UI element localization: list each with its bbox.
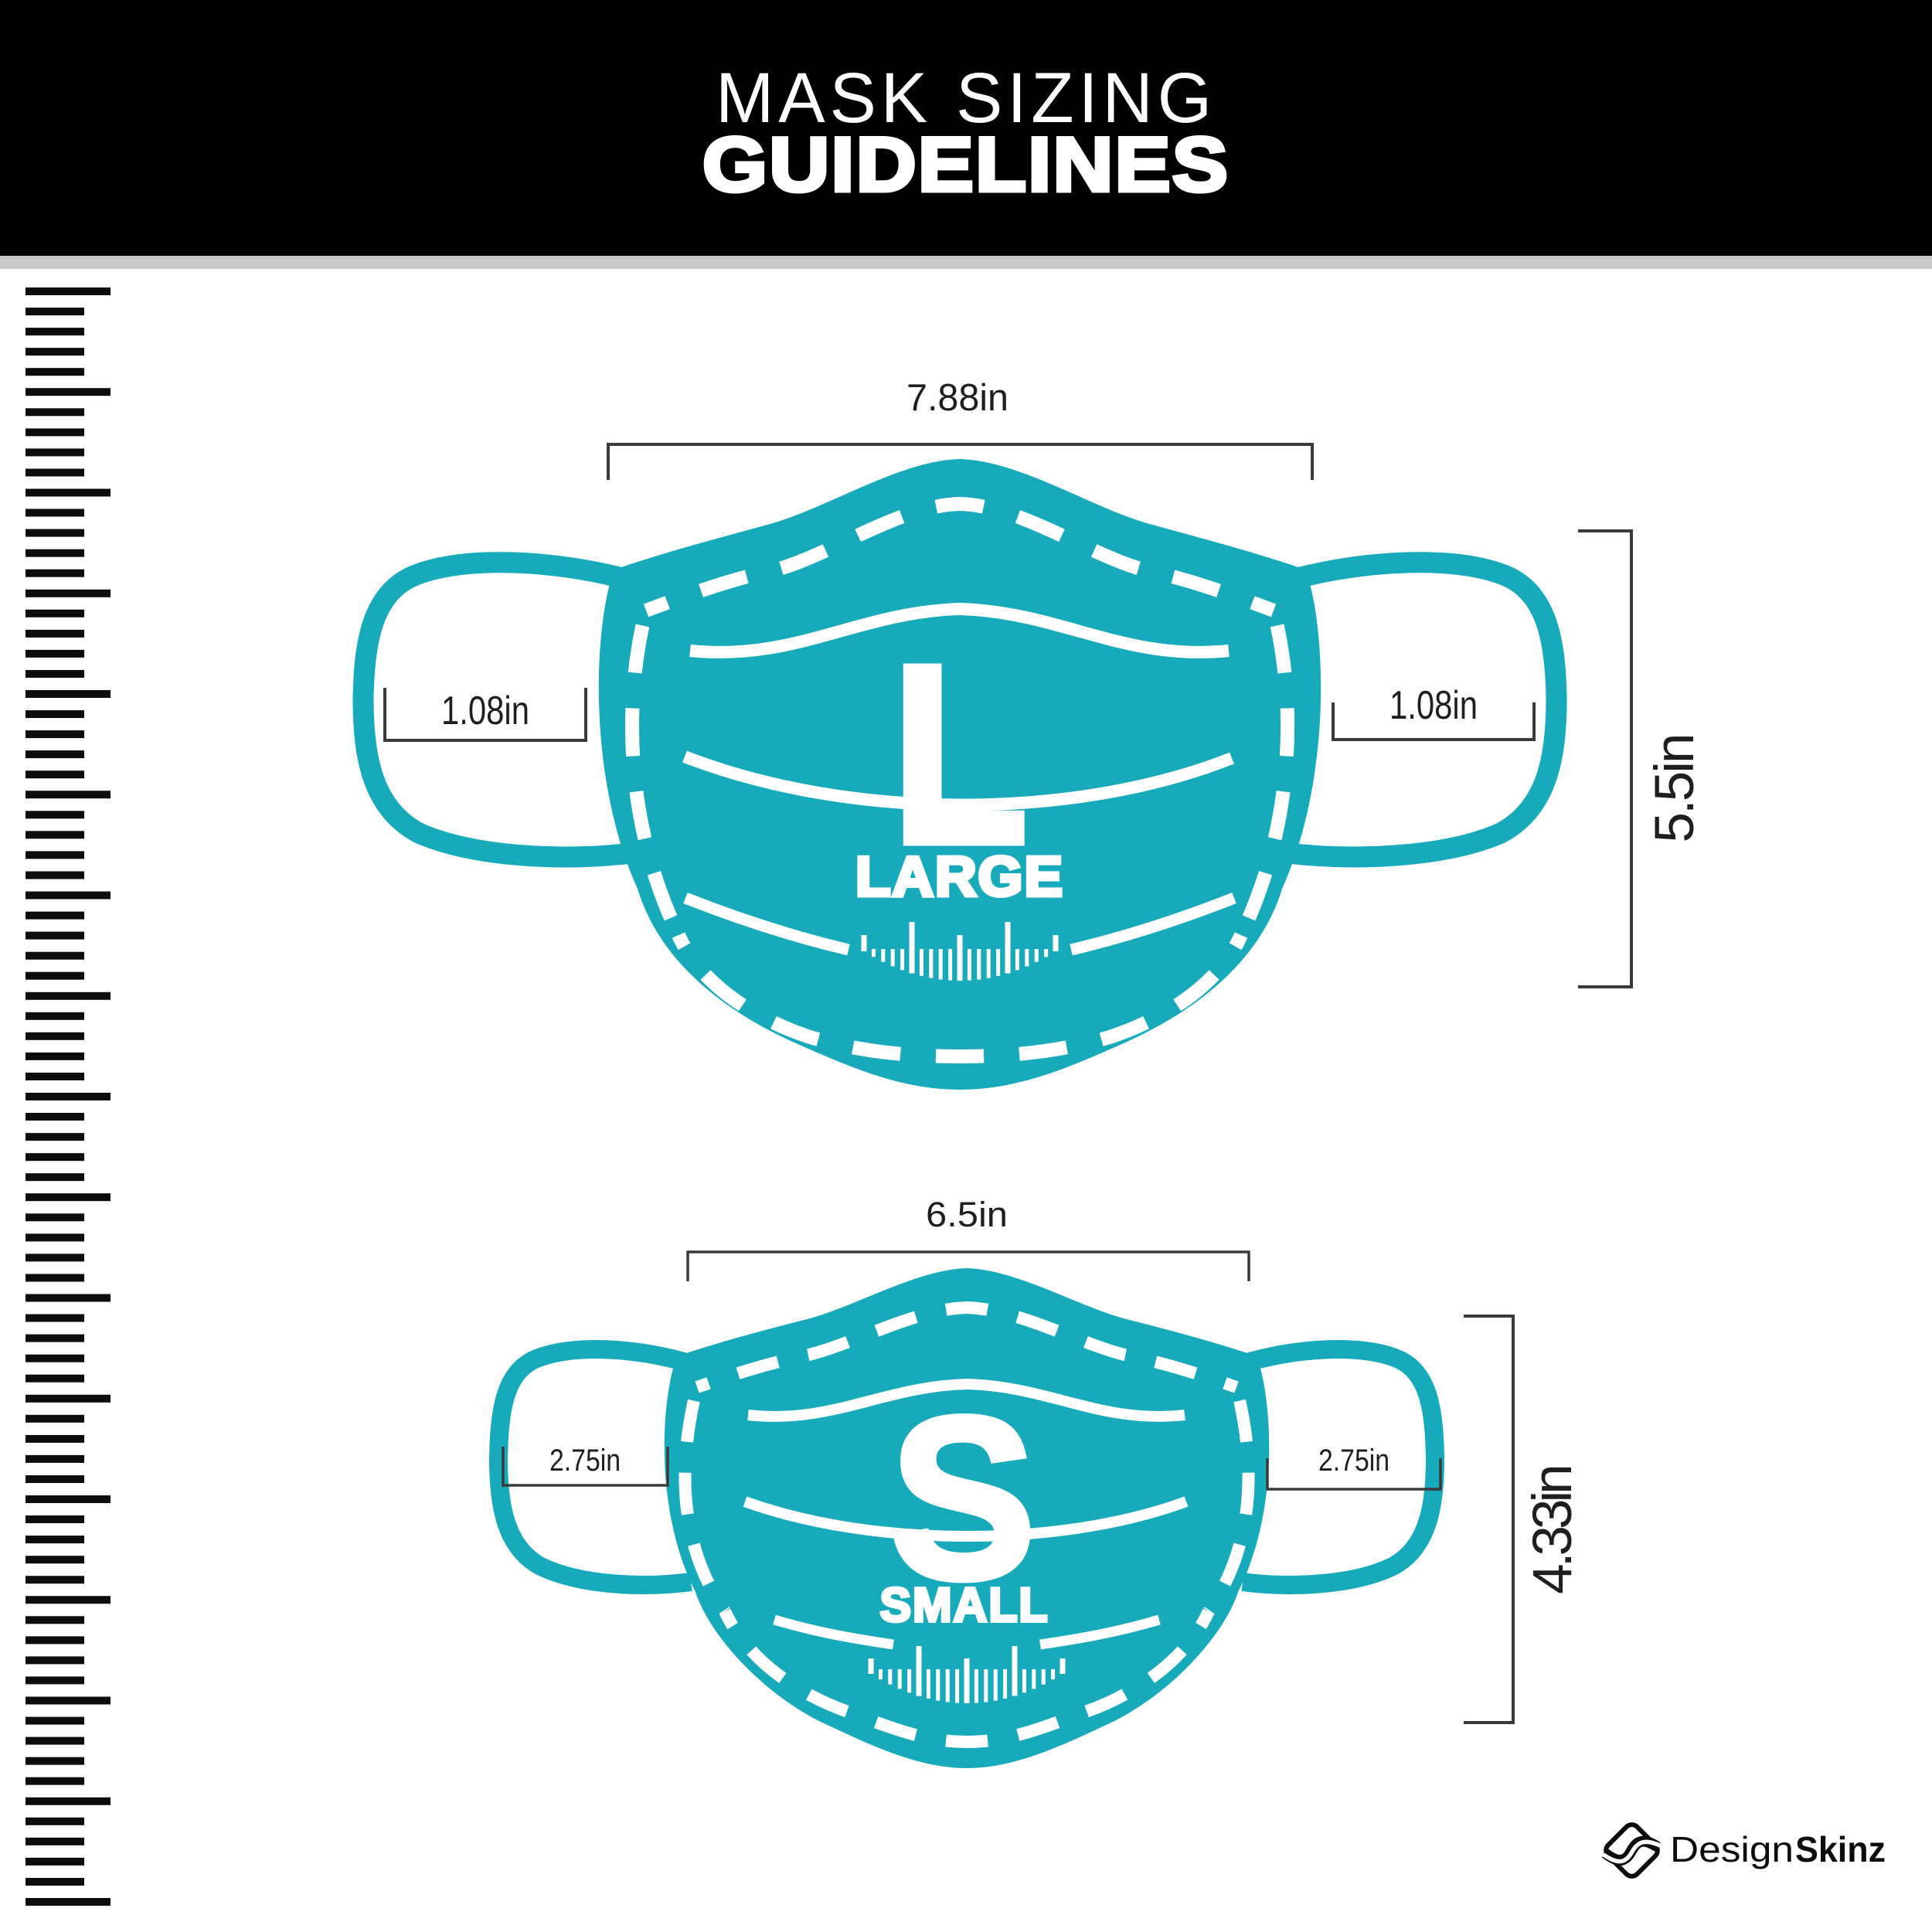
svg-text:6.5in: 6.5in bbox=[926, 1195, 1008, 1234]
svg-text:2.75in: 2.75in bbox=[549, 1444, 621, 1478]
svg-text:1.08in: 1.08in bbox=[1389, 683, 1478, 728]
svg-text:7.88in: 7.88in bbox=[906, 377, 1009, 419]
svg-text:LARGE: LARGE bbox=[855, 846, 1064, 908]
svg-text:1.08in: 1.08in bbox=[441, 689, 529, 733]
svg-text:2.75in: 2.75in bbox=[1318, 1444, 1389, 1478]
svg-text:SMALL: SMALL bbox=[880, 1579, 1049, 1632]
svg-text:Skinz: Skinz bbox=[1795, 1829, 1886, 1869]
svg-text:Design: Design bbox=[1670, 1829, 1794, 1869]
svg-text:GUIDELINES: GUIDELINES bbox=[702, 121, 1230, 207]
svg-text:4.33in: 4.33in bbox=[1522, 1468, 1583, 1594]
svg-text:5.5in: 5.5in bbox=[1645, 736, 1706, 843]
